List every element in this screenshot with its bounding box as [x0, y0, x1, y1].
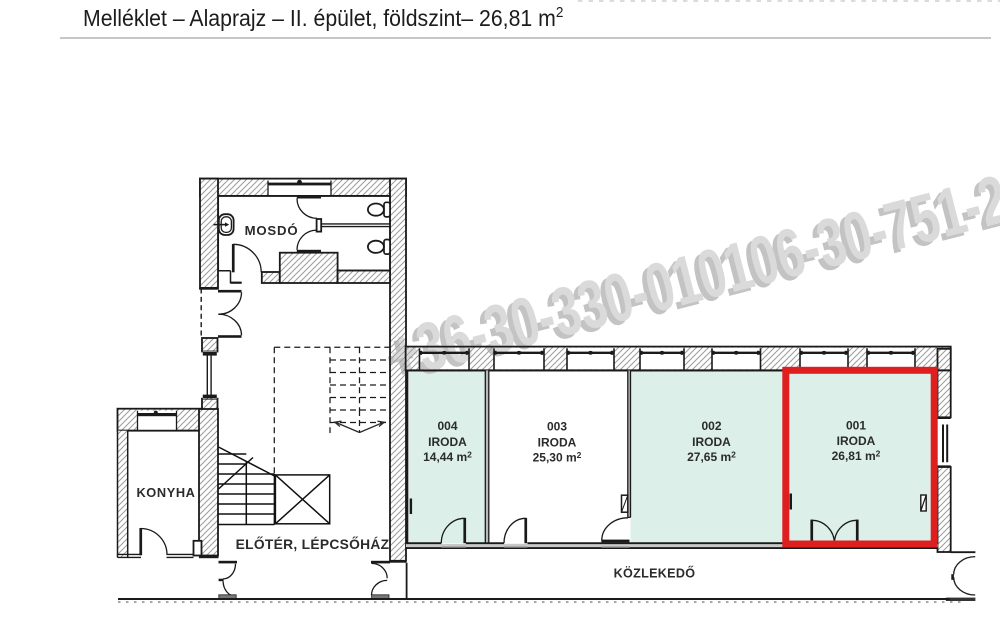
svg-text:26,81 m2: 26,81 m2 — [832, 449, 881, 464]
svg-text:KÖZLEKEDŐ: KÖZLEKEDŐ — [614, 566, 696, 581]
svg-text:004: 004 — [437, 419, 457, 433]
svg-text:001: 001 — [846, 419, 866, 433]
svg-text:002: 002 — [701, 419, 721, 433]
svg-text:KONYHA: KONYHA — [136, 485, 195, 500]
svg-text:14,44 m2: 14,44 m2 — [423, 450, 472, 465]
svg-text:IRODA: IRODA — [837, 434, 876, 448]
svg-text:IRODA: IRODA — [692, 435, 731, 449]
svg-text:IRODA: IRODA — [538, 436, 577, 450]
svg-text:003: 003 — [547, 420, 567, 434]
svg-text:IRODA: IRODA — [428, 435, 467, 449]
svg-text:25,30 m2: 25,30 m2 — [533, 450, 582, 465]
svg-text:27,65 m2: 27,65 m2 — [687, 450, 736, 465]
svg-text:MOSDÓ: MOSDÓ — [245, 223, 299, 238]
svg-text:ELŐTÉR, LÉPCSŐHÁZ: ELŐTÉR, LÉPCSŐHÁZ — [236, 535, 390, 552]
